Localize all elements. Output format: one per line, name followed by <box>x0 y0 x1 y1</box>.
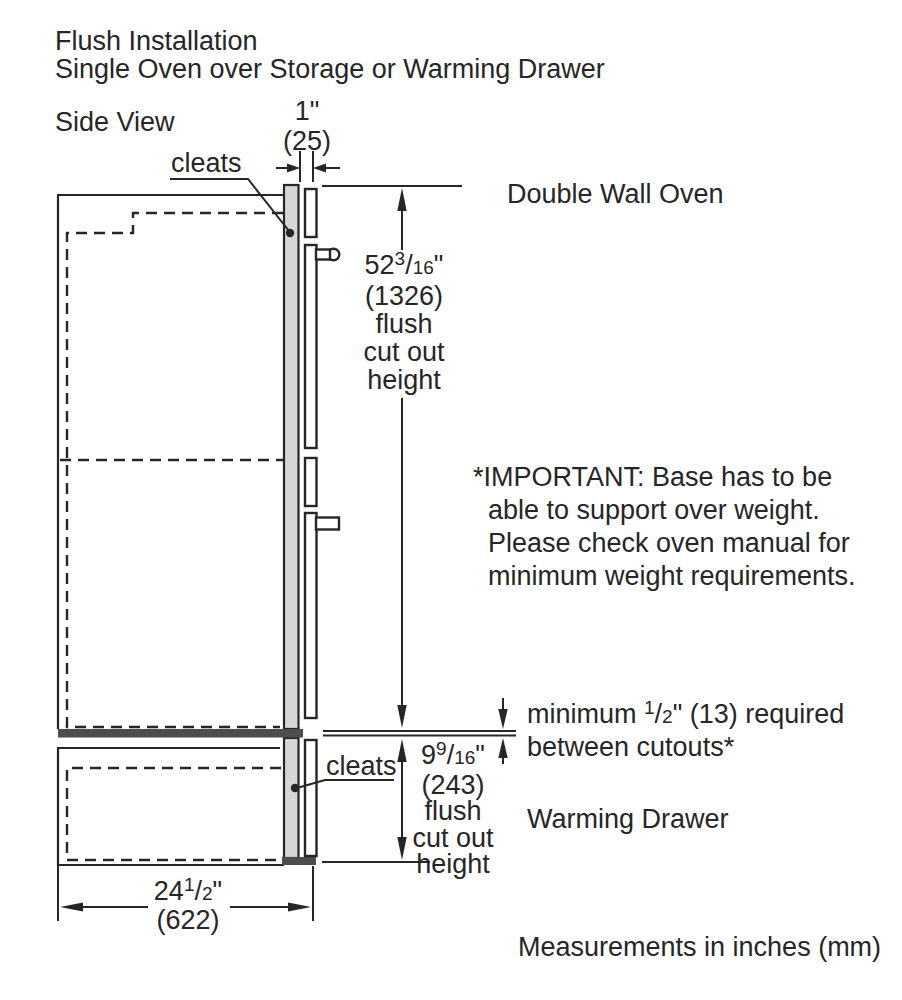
min-gap-line2: between cutouts* <box>527 733 734 761</box>
lower-cabinet-outline <box>58 748 284 865</box>
arrowhead <box>397 188 406 211</box>
oven-cutout-desc2: cut out <box>334 338 474 366</box>
important-note-line3: Please check oven manual for <box>488 527 856 560</box>
cleats-label-top: cleats <box>171 149 242 177</box>
cleat-strip-upper <box>284 185 299 729</box>
installation-diagram-page: Flush Installation Single Oven over Stor… <box>0 0 902 1000</box>
drawer-cutout-inches: 99/16" <box>387 742 519 772</box>
arrowhead <box>60 903 83 912</box>
cleat-depth-mm: (25) <box>281 127 333 155</box>
important-note: *IMPORTANT: Base has to be able to suppo… <box>488 461 856 593</box>
title-line2: Single Oven over Storage or Warming Draw… <box>55 55 605 83</box>
cleats-leader-top <box>170 179 294 237</box>
title-line1: Flush Installation <box>55 27 258 55</box>
arrowhead <box>287 164 300 173</box>
side-view-label: Side View <box>55 108 175 136</box>
oven-door-lower <box>305 513 317 718</box>
drawer-front-panel <box>305 740 317 856</box>
cabinet-width-mm: (622) <box>118 906 258 934</box>
oven-cutout-desc3: height <box>334 366 474 394</box>
important-note-line1: *IMPORTANT: Base has to be <box>473 461 856 494</box>
important-note-line2: able to support over weight. <box>488 494 856 527</box>
lower-oven-handle-bar <box>316 518 339 530</box>
oven-cutout-mm: (1326) <box>334 282 474 310</box>
upper-cutout-dashed <box>67 213 283 727</box>
oven-cutout-inches: 523/16" <box>334 251 474 282</box>
cleat-depth-inches: 1" <box>281 97 333 125</box>
double-wall-oven-label: Double Wall Oven <box>507 180 724 208</box>
oven-trim-panel-middle <box>305 458 317 506</box>
drawer-cutout-mm: (243) <box>387 772 519 799</box>
footer-measurements-note: Measurements in inches (mm) <box>518 933 881 961</box>
cabinet-width-inches: 241/2" <box>118 877 258 908</box>
important-note-line4: minimum weight requirements. <box>488 560 856 593</box>
oven-cutout-dimension-label: 523/16" (1326) flush cut out height <box>334 251 474 394</box>
oven-trim-panel-top <box>305 189 317 237</box>
oven-door-upper <box>305 245 317 448</box>
min-gap-line1: minimum 1/2" (13) required <box>527 700 844 731</box>
drawer-cutout-desc2: cut out <box>387 825 519 852</box>
arrowhead <box>313 164 326 173</box>
warming-drawer-label: Warming Drawer <box>527 805 729 833</box>
arrowhead <box>288 903 311 912</box>
drawer-cutout-desc3: height <box>387 851 519 878</box>
lower-cutout-dashed <box>67 768 281 860</box>
cleat-strip-lower <box>284 738 299 858</box>
drawer-bottom-bar <box>282 857 316 865</box>
upper-oven-handle-bar <box>316 250 330 260</box>
cleats-label-bottom: cleats <box>326 752 397 780</box>
arrowhead <box>397 705 406 728</box>
upper-cabinet-outline <box>58 195 283 729</box>
arrowhead <box>498 709 507 729</box>
oven-cutout-desc1: flush <box>334 310 474 338</box>
drawer-cutout-desc1: flush <box>387 798 519 825</box>
drawer-cutout-dimension-label: 99/16" (243) flush cut out height <box>387 742 519 878</box>
cutout-separator-bar <box>58 729 303 738</box>
